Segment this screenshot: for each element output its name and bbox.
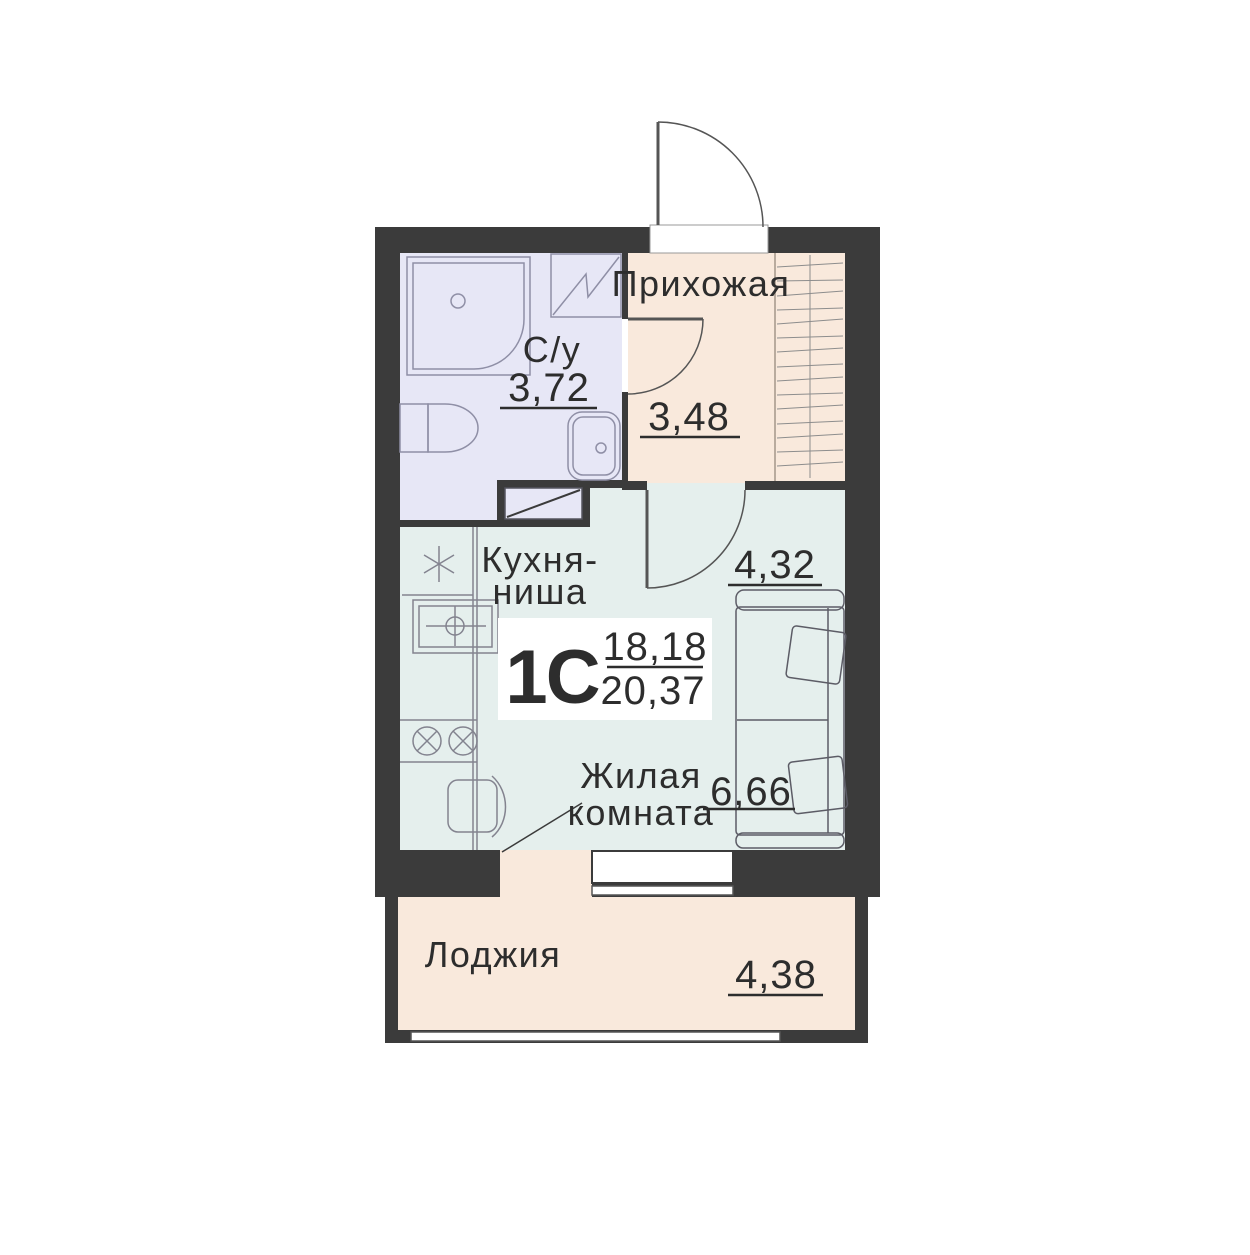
living-room-label-line1: Жилая	[580, 755, 701, 796]
living-room-dim-top: 4,32	[734, 543, 816, 587]
living-area-value: 18,18	[602, 625, 707, 669]
hallway-area: 3,48	[648, 395, 730, 439]
floor-plan-page: Прихожая 3,48 С/у 3,72 Кухня- ниша 1С 18…	[0, 0, 1250, 1250]
apartment-type: 1С	[505, 635, 598, 720]
bathroom-area: 3,72	[508, 366, 590, 410]
total-area-value: 20,37	[600, 669, 705, 713]
living-room-label-line2: комната	[568, 792, 715, 833]
living-room-window	[592, 851, 733, 895]
entrance-door	[650, 122, 768, 253]
kitchen-label-line2: ниша	[493, 571, 588, 612]
living-room-dim-bottom: 6,66	[710, 770, 792, 814]
balcony-opening-floor	[500, 850, 592, 897]
loggia-window	[411, 1032, 780, 1041]
hallway-label: Прихожая	[612, 263, 791, 304]
floor-plan-svg: Прихожая 3,48 С/у 3,72 Кухня- ниша 1С 18…	[0, 0, 1250, 1250]
bathroom-label: С/у	[523, 329, 582, 370]
vent-shaft	[505, 488, 582, 519]
loggia-label: Лоджия	[425, 934, 562, 975]
loggia-area: 4,38	[735, 953, 817, 997]
